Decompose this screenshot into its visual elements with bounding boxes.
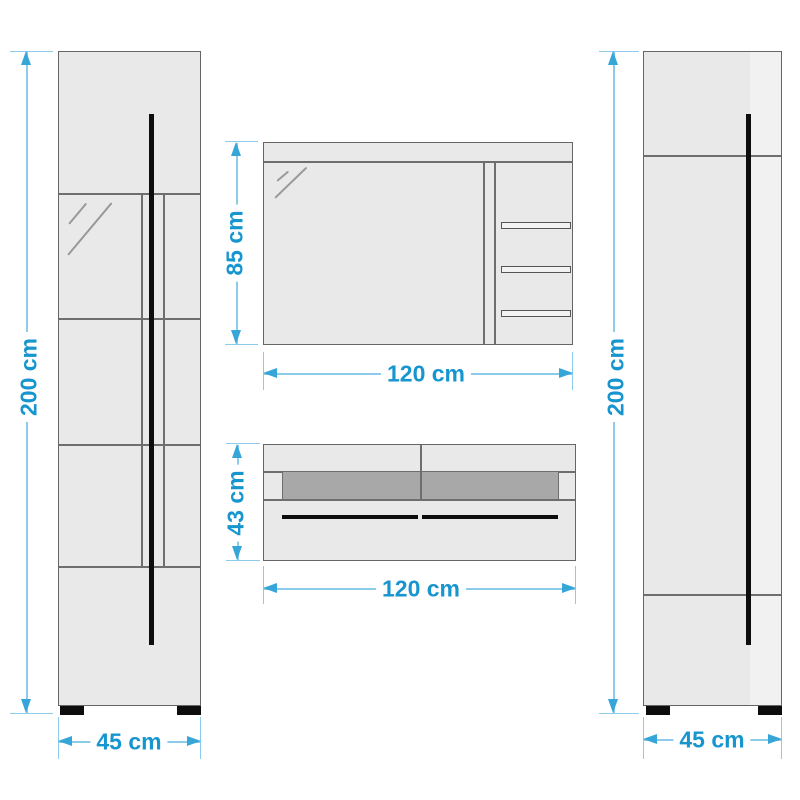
- arrow-up-icon: [608, 51, 618, 65]
- dimension-label: 200 cm: [15, 332, 44, 422]
- wall-shelf: [263, 444, 576, 561]
- arrow-right-icon: [768, 734, 782, 744]
- top-cabinet-divider-right: [494, 161, 496, 344]
- arrow-down-icon: [231, 330, 241, 344]
- glass-reflection-icon: [276, 171, 289, 182]
- drawer-handle: [501, 266, 571, 273]
- arrow-down-icon: [608, 699, 618, 713]
- right-cabinet-division-2: [644, 594, 781, 596]
- arrow-left-icon: [643, 734, 657, 744]
- extension-line: [226, 560, 260, 561]
- dimension-label: 120 cm: [381, 360, 471, 389]
- top-cabinet-cornice-line: [264, 161, 572, 163]
- arrow-right-icon: [562, 583, 576, 593]
- arrow-up-icon: [231, 142, 241, 156]
- drawer-handle: [501, 310, 571, 317]
- furniture-dimension-diagram: 200 cm 45 cm 85 cm 120 cm: [0, 0, 800, 800]
- dimension-label: 120 cm: [376, 575, 466, 604]
- door-handle: [149, 114, 154, 645]
- arrow-right-icon: [559, 368, 573, 378]
- door-edge-panel: [750, 52, 781, 705]
- dimension-label: 85 cm: [221, 204, 250, 281]
- right-tall-cabinet: [643, 51, 782, 706]
- left-cabinet-division-3: [59, 444, 200, 446]
- arrow-up-icon: [232, 444, 242, 458]
- top-wall-cabinet: [263, 142, 573, 345]
- glass-reflection-icon: [68, 203, 87, 225]
- glass-reflection-icon: [67, 202, 112, 255]
- arrow-right-icon: [187, 736, 201, 746]
- shelf-center-divider: [420, 445, 422, 500]
- dimension-label: 45 cm: [673, 726, 750, 755]
- left-cabinet-division-2: [59, 318, 200, 320]
- door-handle: [746, 114, 751, 645]
- arrow-left-icon: [263, 368, 277, 378]
- arrow-left-icon: [58, 736, 72, 746]
- left-cabinet-door-gap-left: [141, 193, 143, 566]
- left-cabinet-division-4: [59, 566, 200, 568]
- extension-line: [599, 713, 639, 714]
- cabinet-foot: [60, 706, 84, 715]
- extension-line: [10, 51, 53, 52]
- extension-line: [599, 51, 639, 52]
- left-cabinet-division-1: [59, 193, 200, 195]
- dimension-label: 43 cm: [222, 464, 251, 541]
- arrow-up-icon: [21, 51, 31, 65]
- dimension-label: 45 cm: [90, 728, 167, 757]
- flap-handle: [282, 515, 418, 519]
- extension-line: [225, 344, 258, 345]
- extension-line: [225, 141, 258, 142]
- extension-line: [10, 713, 53, 714]
- arrow-left-icon: [263, 583, 277, 593]
- arrow-down-icon: [21, 699, 31, 713]
- cabinet-foot: [646, 706, 670, 715]
- cabinet-foot: [177, 706, 201, 715]
- glass-reflection-icon: [274, 167, 307, 199]
- right-cabinet-division-1: [644, 155, 781, 157]
- dimension-label: 200 cm: [602, 332, 631, 422]
- drawer-handle: [501, 222, 571, 229]
- arrow-down-icon: [232, 546, 242, 560]
- cabinet-foot: [758, 706, 782, 715]
- flap-handle: [422, 515, 558, 519]
- left-cabinet-door-gap-right: [163, 193, 165, 566]
- left-tall-cabinet: [58, 51, 201, 706]
- top-cabinet-divider-left: [483, 161, 485, 344]
